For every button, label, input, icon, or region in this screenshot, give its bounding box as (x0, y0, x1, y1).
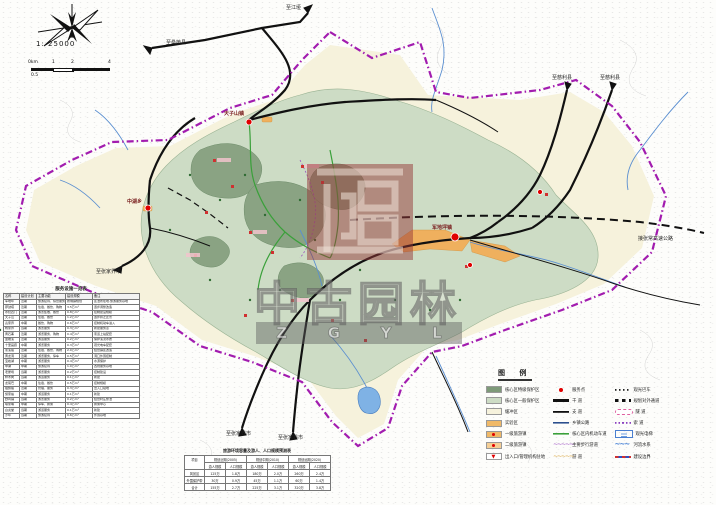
capacity-sub-row: 游人规模 人口规模 游人规模 人口规模 游人规模 人口规模 (185, 463, 331, 470)
table-row: 风景区 125万 1.8万 180万 2.0万 260万 2.4万 (185, 470, 331, 477)
legend-label: 核心区一般保护区 (505, 398, 539, 404)
scale-tick-3: 4 (108, 60, 111, 65)
legend-label: 干 道 (572, 398, 582, 404)
cell-value: 180万 (247, 470, 268, 477)
scale-bar: 0km 1 2 4 0.5 (16, 52, 126, 78)
cell-value: 3.1万 (268, 484, 289, 491)
legend-label: 核心区内机动车道 (572, 431, 606, 437)
legend-item: 核心区一般保护区 (486, 397, 545, 404)
cell-name: 沙坪 (4, 413, 20, 418)
legend-label: 规划对外通道 (634, 398, 660, 404)
cell-value: 1.4万 (310, 477, 331, 484)
legend-label: 主要步行游道 (572, 442, 598, 448)
scale-seg-3 (72, 68, 110, 71)
legend-item: 河流水系 (615, 442, 660, 449)
legend-line-sample (553, 387, 569, 393)
cell-zone: 风景区 (185, 470, 205, 477)
legend-line-sample (615, 387, 631, 393)
legend-column-2: 服务点 干 道 支 道 乡镇公路 核心区内机动车道 主要步行游道 (553, 386, 606, 460)
legend-label: 一级旅游镇 (505, 431, 526, 437)
legend-label: 隧 道 (636, 409, 646, 415)
scale-seg-1 (31, 68, 53, 71)
legend-line-sample (615, 442, 631, 448)
legend-label: 索 道 (634, 420, 644, 426)
map-sheet: 至桑植县 至江垭 至慈利县 至慈利县 至张家界市 至张家界市 至张家界市 接张常… (0, 0, 716, 505)
sub-header: 游人规模 (289, 463, 310, 470)
legend-swatch (486, 442, 502, 449)
legend-line-sample (553, 442, 569, 448)
legend-item: 游 道 (553, 453, 606, 460)
capacity-table-title: 旅游环境容量及游人、人口规模预测表 (184, 448, 330, 454)
label-to-cili-2: 至慈利县 (600, 76, 620, 81)
cell-value: 155万 (205, 484, 226, 491)
legend-item: 干 道 (553, 397, 606, 404)
cell-value: 2.0万 (268, 470, 289, 477)
legend-item: 规划对外通道 (615, 397, 660, 404)
table-row: 外围保护带 30万 0.9万 45万 1.1万 60万 1.4万 (185, 477, 331, 484)
sub-header: 人口规模 (310, 463, 331, 470)
legend-label: 二级旅游镇 (505, 442, 526, 448)
legend-line-sample (615, 409, 633, 415)
capacity-group-row: 项目 规划近期(2005) 规划中期(2010) 规划远期(2020) (185, 456, 331, 463)
scale-tick-1: 1 (52, 60, 55, 65)
legend-item: 隧 道 (615, 408, 660, 415)
cell-value: 30万 (205, 477, 226, 484)
legend-line-sample (615, 454, 631, 460)
label-zhonghu: 中湖乡 (127, 200, 142, 205)
label-to-zjj-bottom2: 至张家界市 (278, 436, 303, 441)
group-header: 规划远期(2020) (289, 456, 331, 463)
cell-note: 外围基地 (93, 413, 140, 418)
legend: 图 例 核心区特级保护区 核心区一般保护区 缓冲区 实验区 一 (486, 360, 712, 470)
label-jundiping: 军地坪镇 (432, 226, 452, 231)
cell-value: 3.8万 (310, 484, 331, 491)
legend-item: 索 道 (615, 420, 660, 427)
legend-item: 建设边界 (615, 453, 660, 460)
cell-scale: 0.6万m² (66, 413, 93, 418)
facilities-table: 服务设施一览表 名称 建设计划 主要功能 建设规模 备注 军地坪 近期 旅游接待… (3, 286, 139, 419)
legend-label: 服务点 (572, 387, 585, 393)
legend-item: 缓冲区 (486, 408, 545, 415)
legend-line-sample (553, 431, 569, 437)
cell-value: 320万 (289, 484, 310, 491)
legend-label: 缓冲区 (505, 409, 518, 415)
legend-title: 图 例 (498, 368, 532, 381)
label-to-zjj-left: 至张家界市 (96, 270, 121, 275)
legend-item: 服务点 (553, 386, 606, 393)
sub-header: 游人规模 (247, 463, 268, 470)
legend-item: 二级旅游镇 (486, 442, 545, 449)
legend-label: 游 道 (572, 454, 582, 460)
lake (358, 387, 380, 413)
legend-label: 核心区特级保护区 (505, 387, 539, 393)
legend-column-1: 核心区特级保护区 核心区一般保护区 缓冲区 实验区 一级旅游镇 二级旅游镇 (486, 386, 545, 460)
legend-line-sample (615, 430, 633, 438)
scale-tick-0: 0km (28, 60, 38, 65)
legend-item: 观光巴车 (615, 386, 660, 393)
legend-label: 支 道 (572, 409, 582, 415)
legend-label: 出入口/管理机构驻地 (505, 454, 545, 460)
sub-header: 游人规模 (205, 463, 226, 470)
legend-item: 观光电梯 (615, 431, 660, 438)
table-row: 沙坪 远期 旅游接待 0.6万m² 外围基地 (4, 413, 140, 418)
legend-item: 一级旅游镇 (486, 431, 545, 438)
legend-label: 观光巴车 (634, 387, 651, 393)
cell-function: 旅游接待 (37, 413, 66, 418)
legend-label: 实验区 (505, 420, 518, 426)
group-header: 规划中期(2010) (247, 456, 289, 463)
cell-value: 225万 (247, 484, 268, 491)
label-to-cili-1: 至慈利县 (552, 76, 572, 81)
legend-item: 核心区内机动车道 (553, 431, 606, 438)
legend-item: 主要步行游道 (553, 442, 606, 449)
legend-swatch (486, 386, 502, 393)
legend-line-sample (553, 398, 569, 404)
cell-value: 45万 (247, 477, 268, 484)
scale-tick-2: 2 (71, 60, 74, 65)
cell-value: 1.8万 (226, 470, 247, 477)
label-to-jiangya: 至江垭 (286, 6, 301, 11)
legend-item: 支 道 (553, 408, 606, 415)
cell-value: 0.9万 (226, 477, 247, 484)
legend-line-sample (615, 398, 631, 404)
legend-line-sample (553, 454, 569, 460)
label-tianzishan: 天子山镇 (224, 112, 244, 117)
cell-zone: 合计 (185, 484, 205, 491)
legend-swatch (486, 420, 502, 427)
legend-item: 乡镇公路 (553, 420, 606, 427)
cell-value: 260万 (289, 470, 310, 477)
legend-label: 河流水系 (634, 442, 651, 448)
legend-label: 建设边界 (634, 454, 651, 460)
legend-item: 出入口/管理机构驻地 (486, 453, 545, 460)
scale-ratio: 1: 25000 (36, 40, 75, 48)
scale-seg-2 (53, 68, 74, 72)
legend-line-sample (615, 420, 631, 426)
label-to-sangzhi: 至桑植县 (166, 41, 186, 46)
legend-swatch (486, 397, 502, 404)
cell-value: 60万 (289, 477, 310, 484)
legend-swatch (486, 431, 502, 438)
legend-swatch (486, 453, 502, 460)
legend-column-3: 观光巴车 规划对外通道 隧 道 索 道 观光电梯 河流水系 (615, 386, 660, 460)
cell-value: 1.1万 (268, 477, 289, 484)
legend-line-sample (553, 409, 569, 415)
legend-line-sample (553, 420, 569, 426)
cell-value: 2.7万 (226, 484, 247, 491)
legend-swatch (486, 408, 502, 415)
legend-label: 乡镇公路 (572, 420, 589, 426)
cell-value: 2.4万 (310, 470, 331, 477)
cell-zone: 外围保护带 (185, 477, 205, 484)
legend-item: 核心区特级保护区 (486, 386, 545, 393)
sub-header: 人口规模 (226, 463, 247, 470)
label-expressway: 接张常高速公路 (638, 237, 673, 242)
corner-header: 项目 (185, 456, 205, 470)
group-header: 规划近期(2005) (205, 456, 247, 463)
scale-half-label: 0.5 (31, 73, 38, 78)
facilities-table-title: 服务设施一览表 (3, 286, 139, 292)
cell-value: 125万 (205, 470, 226, 477)
cell-plan: 远期 (20, 413, 37, 418)
capacity-table: 旅游环境容量及游人、人口规模预测表 项目 规划近期(2005) 规划中期(201… (184, 448, 330, 491)
legend-label: 观光电梯 (636, 431, 653, 437)
label-to-zjj-bottom1: 至张家界市 (226, 432, 251, 437)
legend-item: 实验区 (486, 420, 545, 427)
table-row: 合计 155万 2.7万 225万 3.1万 320万 3.8万 (185, 484, 331, 491)
sub-header: 人口规模 (268, 463, 289, 470)
